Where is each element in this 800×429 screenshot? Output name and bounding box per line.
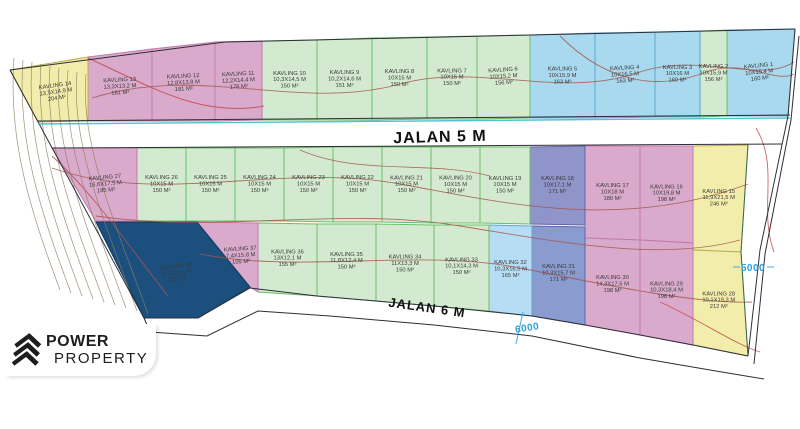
logo-line-power: POWER — [46, 334, 148, 350]
site-plan-canvas: JALAN 5 M JALAN 6 M 5000 6000 KAVLING 11… — [0, 0, 800, 429]
dimension-5000-label: 5000 — [741, 263, 765, 274]
power-property-logo: POWER PROPERTY — [6, 324, 156, 376]
logo-text: POWER PROPERTY — [46, 334, 148, 366]
contour-line — [756, 128, 774, 252]
road-jalan-5m-label: JALAN 5 M — [393, 128, 487, 147]
logo-line-property: PROPERTY — [54, 351, 148, 366]
chevrons-icon — [10, 333, 45, 367]
dimension-6000-label: 6000 — [514, 321, 540, 336]
